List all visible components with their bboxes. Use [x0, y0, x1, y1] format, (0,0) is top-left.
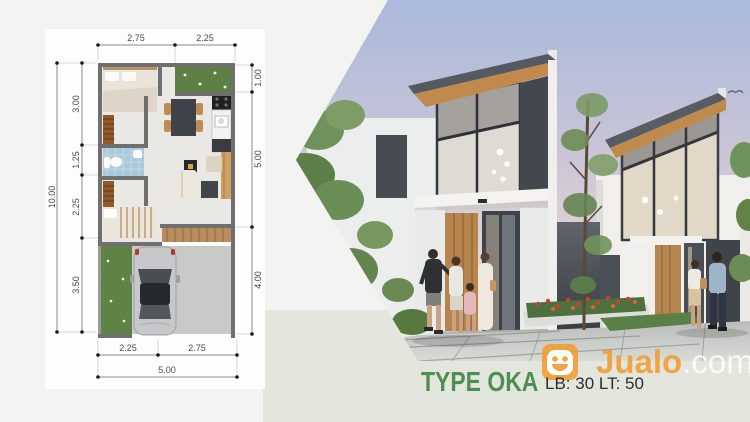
dim-right-2: 5.00 — [253, 150, 263, 168]
dim-right-3: 4.00 — [253, 271, 263, 289]
dim-bottom-right: 2.75 — [188, 343, 206, 353]
dim-right-1: 1.00 — [253, 69, 263, 87]
dim-top-left: 2.75 — [127, 33, 145, 43]
car — [130, 247, 180, 335]
dim-left-4: 3.50 — [71, 276, 81, 294]
dim-top-right: 2.25 — [196, 33, 214, 43]
dim-left-3: 2.25 — [71, 198, 81, 216]
specs-label: LB: 30 LT: 50 — [545, 374, 644, 394]
dim-left-total: 10.00 — [47, 186, 57, 209]
floor-plan-card: 2.75 2.25 10.00 3.00 1.25 2.25 3.50 1.00… — [45, 29, 265, 389]
floor-plan-drawing: 2.75 2.25 10.00 3.00 1.25 2.25 3.50 1.00… — [45, 29, 265, 389]
type-label: TYPE OKA — [421, 366, 538, 398]
dim-left-1: 3.00 — [71, 95, 81, 113]
promo-banner: 2.75 2.25 10.00 3.00 1.25 2.25 3.50 1.00… — [0, 0, 750, 422]
brand-tld: .com — [682, 343, 750, 380]
dim-bottom-total: 5.00 — [158, 365, 176, 375]
dim-bottom-left: 2.25 — [119, 343, 137, 353]
dim-left-2: 1.25 — [71, 151, 81, 169]
